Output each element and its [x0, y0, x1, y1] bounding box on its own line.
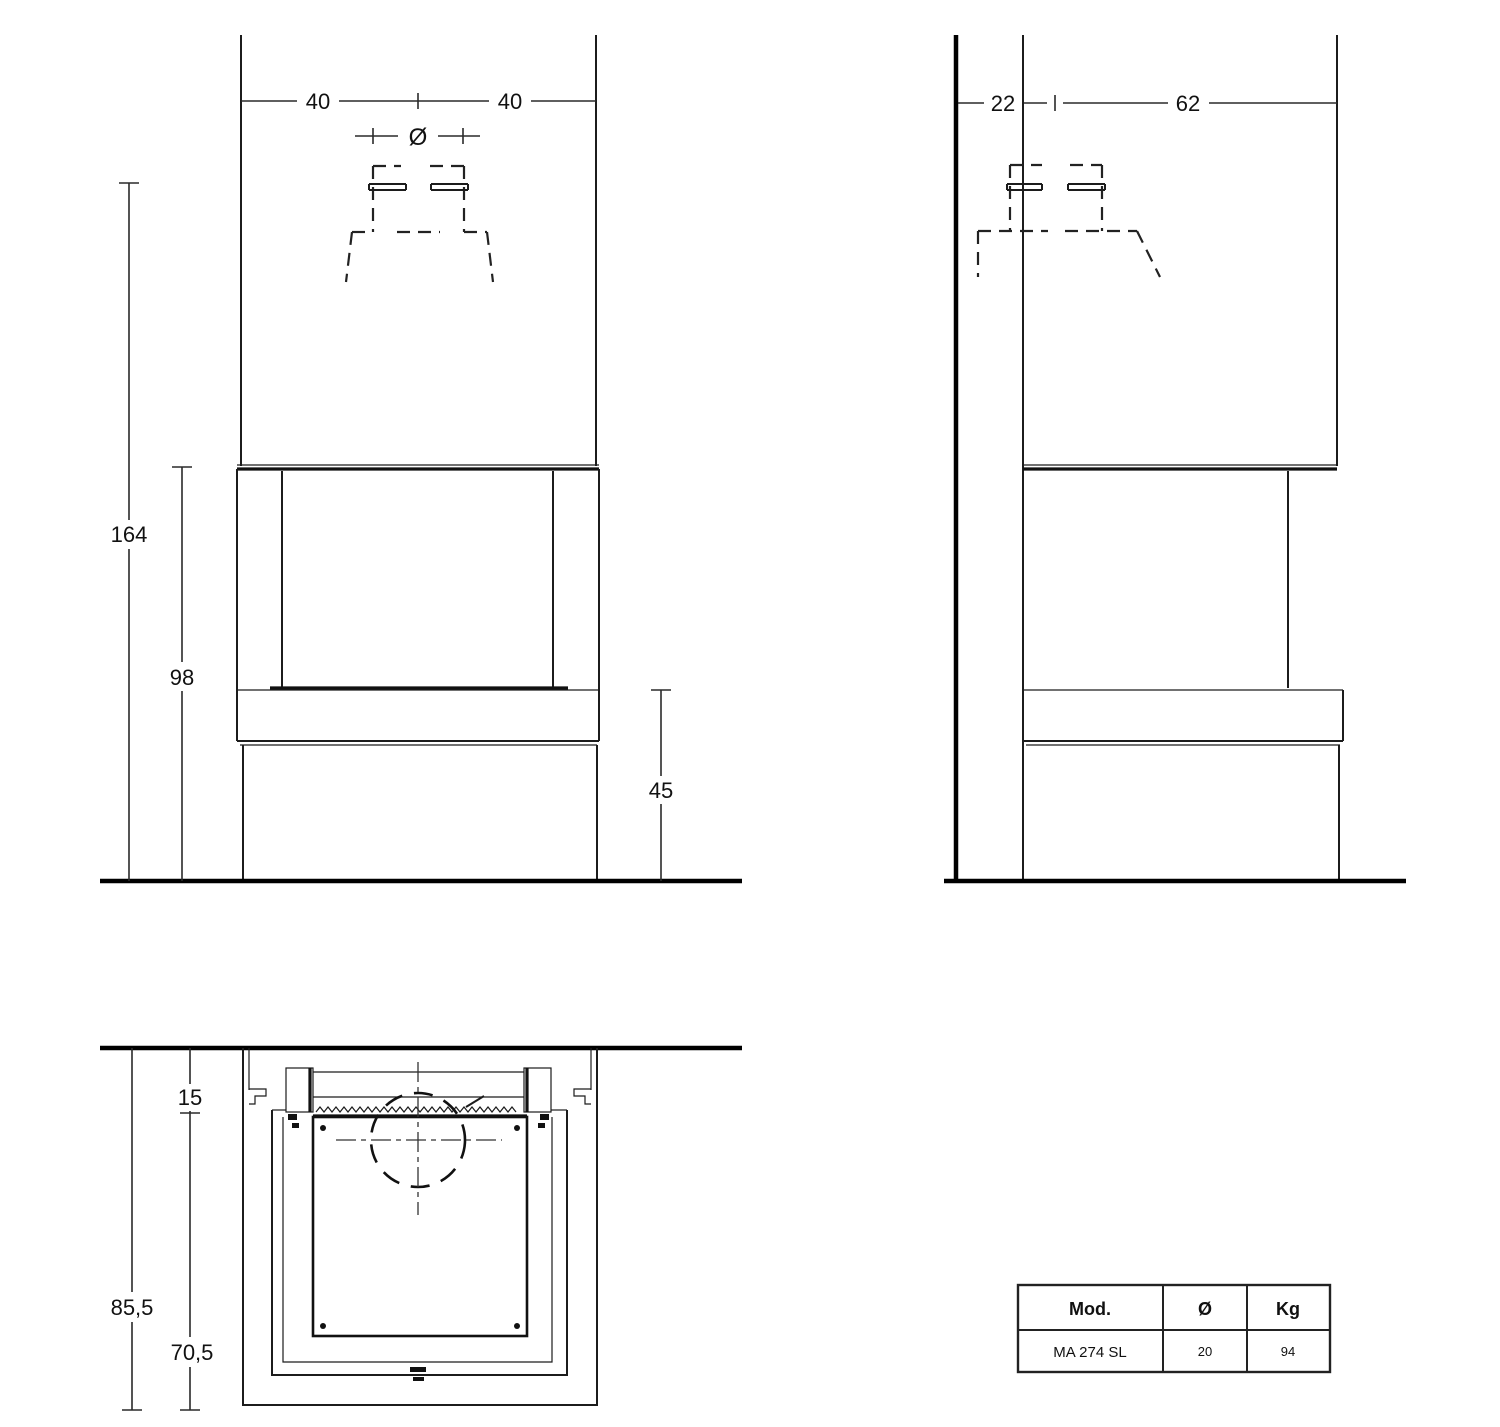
side-view: 22 62	[944, 35, 1406, 881]
firebox-body-plan	[313, 1117, 527, 1336]
plan-view: 85,5 15 70,5	[100, 1048, 742, 1410]
dim-plan-wall-gap-label: 15	[178, 1085, 202, 1110]
dim-side-depth: 22 62	[958, 91, 1337, 116]
dim-front-width-right: 40	[498, 89, 522, 114]
dim-plan-unit-depth-label: 70,5	[171, 1340, 214, 1365]
technical-drawing-sheet: 40 40 Ø	[0, 0, 1500, 1427]
dim-side-depth-back: 22	[991, 91, 1015, 116]
latch-mark	[410, 1367, 426, 1372]
dim-front-width-left: 40	[306, 89, 330, 114]
diameter-symbol: Ø	[409, 124, 428, 151]
table-cell-diameter: 20	[1198, 1344, 1212, 1359]
fireplace-dimension-drawing: 40 40 Ø	[0, 0, 1500, 1427]
front-view: 40 40 Ø	[100, 35, 742, 881]
bracket-left	[286, 1068, 313, 1128]
table-header-mod: Mod.	[1069, 1299, 1111, 1319]
table-cell-weight: 94	[1281, 1344, 1295, 1359]
front-flue-pipe-hidden	[346, 166, 493, 282]
spec-table: Mod. Ø Kg MA 274 SL 20 94	[1018, 1285, 1330, 1372]
dim-front-width: 40 40	[241, 89, 596, 114]
dim-plan-wall-gap-and-unit-depth: 15 70,5	[171, 1048, 214, 1410]
dim-front-height-bench: 45	[649, 690, 673, 881]
latch-mark	[413, 1377, 424, 1381]
dim-height-opening-label: 98	[170, 665, 194, 690]
dim-height-bench-label: 45	[649, 778, 673, 803]
dim-plan-depth-total: 85,5	[111, 1048, 154, 1410]
dim-front-height-total: 164	[111, 183, 148, 881]
side-flue-pipe-hidden	[978, 165, 1160, 277]
dim-plan-depth-total-label: 85,5	[111, 1295, 154, 1320]
table-cell-model: MA 274 SL	[1053, 1344, 1126, 1361]
anchor-clamp-left	[249, 1089, 266, 1104]
table-header-diameter: Ø	[1198, 1299, 1212, 1319]
dim-front-height-opening: 98	[170, 467, 194, 881]
damper-lever	[466, 1096, 484, 1107]
table-header-kg: Kg	[1276, 1299, 1300, 1319]
insulation-zigzag	[316, 1107, 516, 1112]
dim-front-flue-diameter: Ø	[355, 124, 480, 151]
anchor-clamp-right	[574, 1089, 591, 1104]
dim-side-depth-front: 62	[1176, 91, 1200, 116]
dim-height-total-label: 164	[111, 522, 148, 547]
